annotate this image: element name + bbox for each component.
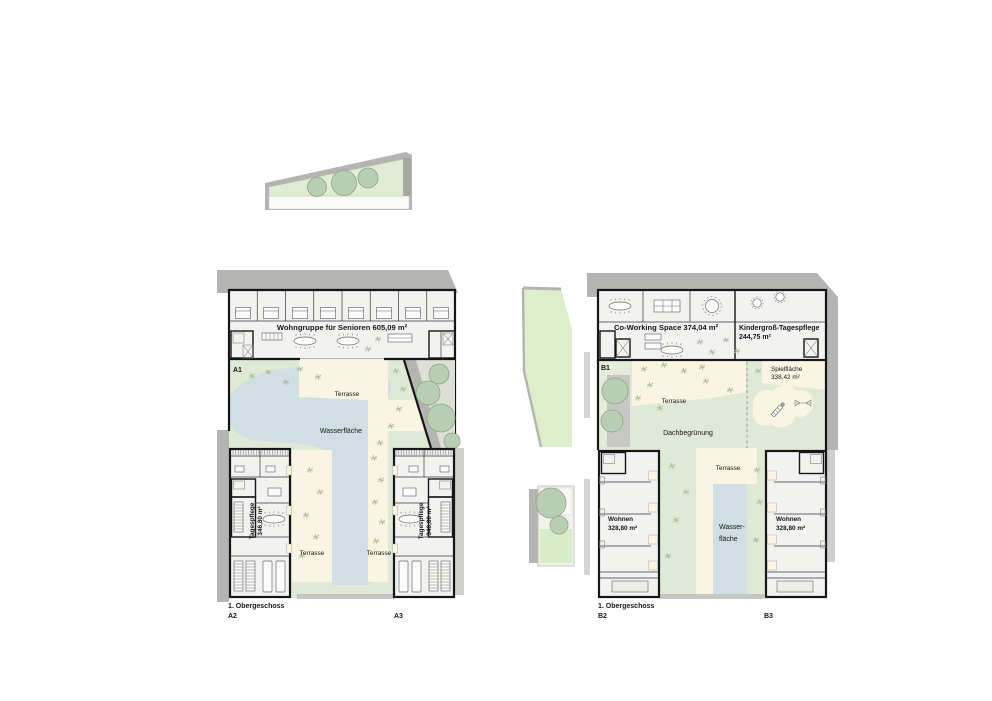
label-wasser-line1: Wasser- xyxy=(719,524,745,531)
tree-strip-b1 xyxy=(599,361,630,447)
label-spielflaeche-name: Spielfläche xyxy=(771,366,803,373)
label-b1: B1 xyxy=(601,365,610,372)
complex-b: Co-Working Space 374,04 m² Kindergroß-Ta… xyxy=(587,273,838,620)
label-terrasse-mid-b: Terrasse xyxy=(716,465,741,472)
mid-connector-upper xyxy=(523,288,572,447)
label-terrasse-br-a: Terrasse xyxy=(367,550,392,557)
shadow-strip xyxy=(584,479,590,575)
label-terrasse-top-b: Terrasse xyxy=(662,398,687,405)
water-end-cap-b xyxy=(660,594,764,599)
shadow-strip xyxy=(584,352,590,418)
floorplan-canvas: Wohngruppe für Senioren 605,09 m² A1 Ter… xyxy=(0,0,992,701)
floorplan-page: Wohngruppe für Senioren 605,09 m² A1 Ter… xyxy=(0,0,992,701)
label-a1: A1 xyxy=(233,367,242,374)
building-a1: Wohngruppe für Senioren 605,09 m² xyxy=(229,290,455,360)
label-dachbegruenung: Dachbegrünung xyxy=(663,430,713,437)
label-tagespflege-a3: Tagespflege 346,80 m² xyxy=(418,502,433,539)
water-end-cap xyxy=(297,594,394,599)
label-wohnen-b3-name: Wohnen xyxy=(776,516,801,523)
svg-text:346,80 m²: 346,80 m² xyxy=(426,506,433,535)
label-wohngruppe: Wohngruppe für Senioren 605,09 m² xyxy=(277,323,408,332)
label-spielflaeche-area: 338,42 m² xyxy=(771,374,800,381)
complex-a: Wohngruppe für Senioren 605,09 m² A1 Ter… xyxy=(217,270,464,620)
label-wohnen-b2-name: Wohnen xyxy=(608,516,633,523)
label-floor-a: 1. Obergeschoss xyxy=(228,603,285,610)
roof-wedge-building xyxy=(265,152,412,210)
label-wohnen-b2-area: 328,80 m² xyxy=(608,525,637,532)
label-kindergross-area: 244,75 m² xyxy=(739,334,772,341)
label-floor-b: 1. Obergeschoss xyxy=(598,603,655,610)
label-tagespflege-a2: Tagespflege 346,80 m² xyxy=(249,502,264,539)
wing-b2 xyxy=(599,451,659,597)
svg-text:346,80 m²: 346,80 m² xyxy=(257,506,264,535)
wing-b3 xyxy=(766,451,826,597)
label-wasserflaeche: Wasserfläche xyxy=(320,428,362,435)
label-coworking: Co-Working Space 374,04 m² xyxy=(614,323,719,332)
label-wasser-line2: fläche xyxy=(719,536,738,543)
mid-connector-lower xyxy=(529,486,574,566)
label-a2: A2 xyxy=(228,613,237,620)
label-b3: B3 xyxy=(764,613,773,620)
label-a3: A3 xyxy=(394,613,403,620)
svg-text:Tagespflege: Tagespflege xyxy=(418,502,425,539)
label-terrasse-bl-a: Terrasse xyxy=(300,550,325,557)
label-wohnen-b3-area: 328,80 m² xyxy=(776,525,805,532)
label-kindergross-name: Kindergroß-Tagespflege xyxy=(739,325,819,332)
svg-text:Tagespflege: Tagespflege xyxy=(249,502,256,539)
building-b1: Co-Working Space 374,04 m² Kindergroß-Ta… xyxy=(598,290,826,360)
label-terrasse-top-a: Terrasse xyxy=(335,391,360,398)
connector-shadow-edge xyxy=(523,288,561,289)
label-b2: B2 xyxy=(598,613,607,620)
